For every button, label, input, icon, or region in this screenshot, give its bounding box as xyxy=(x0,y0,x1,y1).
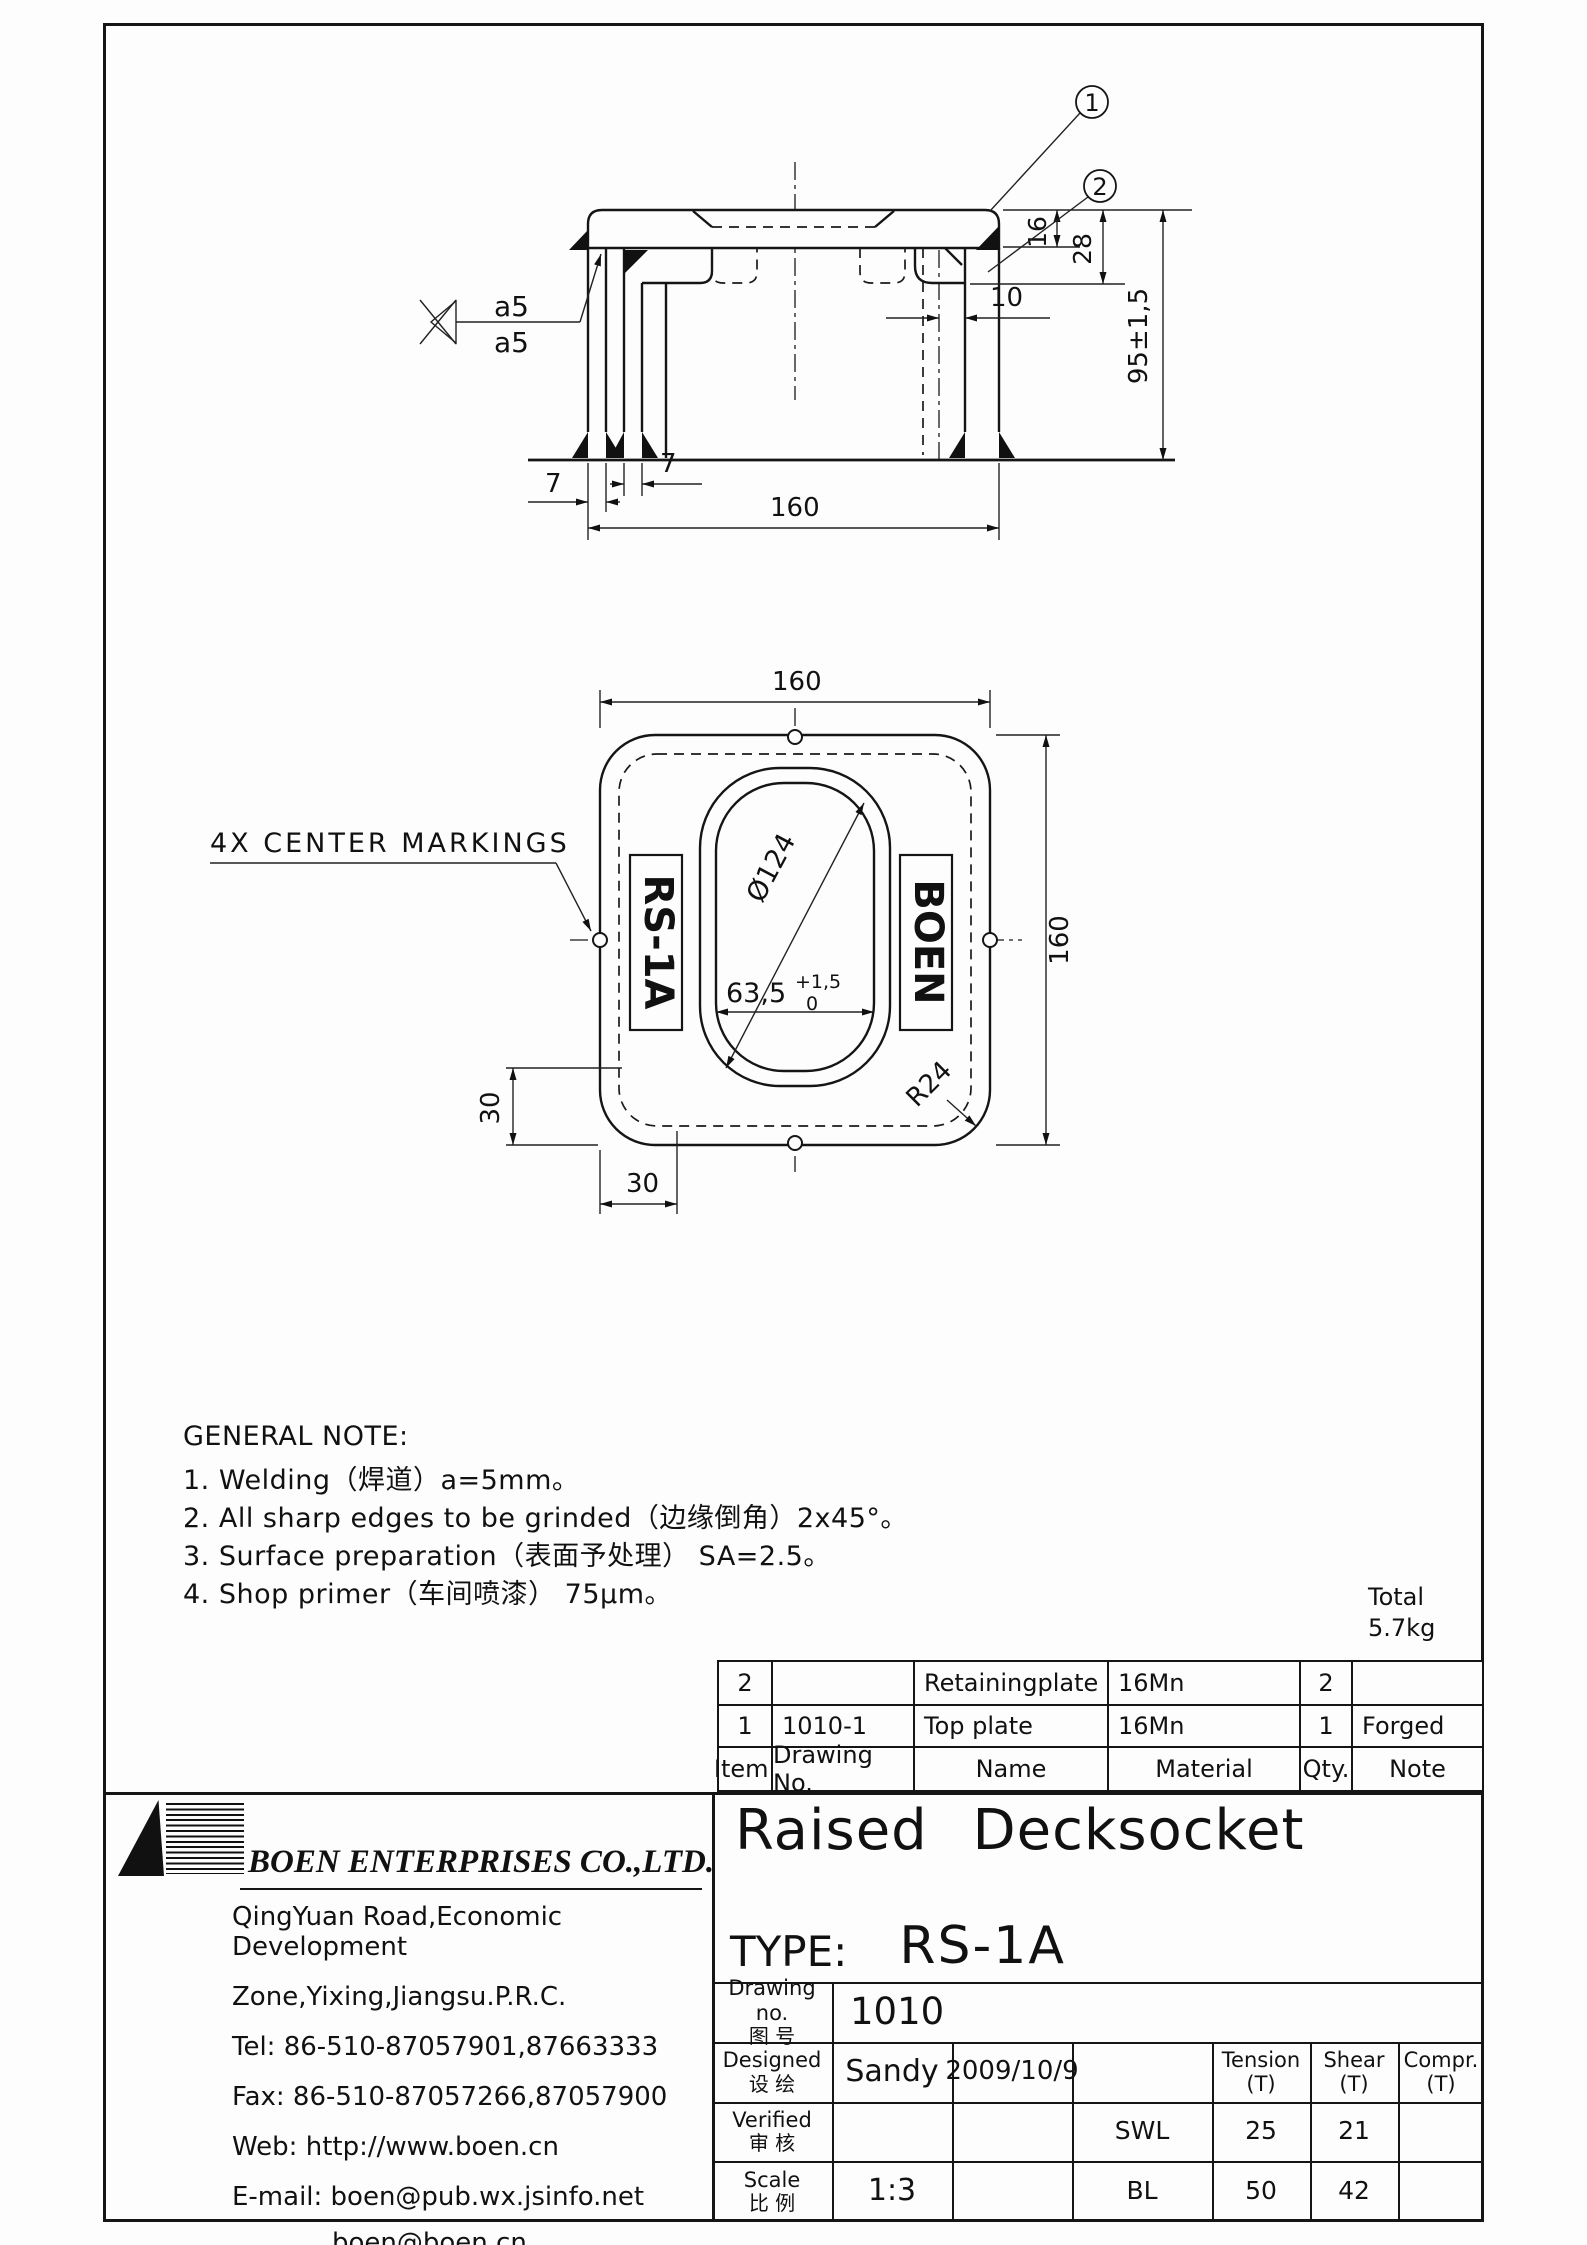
dim-10: 10 xyxy=(990,283,1023,313)
part-qty: 2 xyxy=(1301,1662,1351,1704)
type-label: TYPE: xyxy=(730,1927,847,1976)
parts-header-item: Item. xyxy=(719,1748,771,1790)
type-row: TYPE: RS-1A xyxy=(730,1916,1066,1976)
shear-header: Shear (T) xyxy=(1310,2042,1398,2102)
compr-label: Compr. xyxy=(1404,2048,1479,2072)
dim-28: 28 xyxy=(1068,233,1097,265)
company-email-2: boen@boen.cn xyxy=(232,2228,702,2245)
designer-name: Sandy xyxy=(832,2042,952,2102)
part-material: 16Mn xyxy=(1109,1662,1299,1704)
shear-label: Shear xyxy=(1323,2048,1384,2072)
verified-label-en: Verified xyxy=(732,2108,812,2132)
parts-header-qty: Qty. xyxy=(1301,1748,1351,1790)
note-line: 1. Welding（焊道）a=5mm。 xyxy=(183,1462,1163,1500)
dim-30-vertical: 30 xyxy=(476,1091,506,1124)
designed-label: Designed 设 绘 xyxy=(712,2042,832,2102)
parts-header-note: Note xyxy=(1353,1748,1482,1790)
stamp-rs1a: RS-1A xyxy=(635,875,681,1010)
side-view xyxy=(528,162,1175,465)
compr-unit: (T) xyxy=(1426,2072,1455,2096)
dim-slot: 63,5 xyxy=(726,978,786,1009)
bl-shear-value: 42 xyxy=(1310,2161,1398,2222)
dim-slot-tol-plus: +1,5 xyxy=(795,971,841,993)
verified-label-cn: 审 核 xyxy=(749,2132,795,2155)
part-material: 16Mn xyxy=(1109,1706,1299,1746)
drawing-title: Raised Decksocket xyxy=(735,1798,1304,1863)
dim-160-right: 160 xyxy=(1045,915,1075,965)
weld-symbol: a5 a5 xyxy=(420,254,601,359)
note-line: 3. Surface preparation（表面予处理） SA=2.5。 xyxy=(183,1538,1163,1576)
parts-table: 2 Retainingplate 16Mn 2 1 1010-1 Top pla… xyxy=(717,1660,1484,1792)
drawing-no-label-en: Drawing no. xyxy=(712,1976,832,2024)
bl-label: BL xyxy=(1072,2161,1212,2222)
compr-header: Compr. (T) xyxy=(1398,2042,1484,2102)
total-weight-label: Total xyxy=(1368,1582,1435,1613)
part-drawing-no: 1010-1 xyxy=(773,1706,913,1746)
dim-7-right: 7 xyxy=(660,449,677,479)
scale-label-en: Scale xyxy=(744,2168,801,2192)
part-name: Top plate xyxy=(915,1706,1107,1746)
tension-header: Tension (T) xyxy=(1212,2042,1310,2102)
top-view: RS-1A BOEN xyxy=(570,708,1022,1172)
swl-label: SWL xyxy=(1072,2102,1212,2161)
part-drawing-no xyxy=(773,1662,913,1704)
drawing-no-label: Drawing no. 图 号 xyxy=(712,1982,832,2042)
dim-slot-tol-zero: 0 xyxy=(806,993,818,1015)
dim-7-left: 7 xyxy=(545,469,562,499)
company-address-2: Zone,Yixing,Jiangsu.P.R.C. xyxy=(232,1982,702,2012)
company-email: E-mail: boen@pub.wx.jsinfo.net xyxy=(232,2182,702,2212)
tension-label: Tension xyxy=(1222,2048,1300,2072)
company-address-1: QingYuan Road,Economic Development xyxy=(232,1902,702,1962)
company-name-underline xyxy=(240,1888,702,1890)
dim-160-side: 160 xyxy=(770,493,820,523)
company-logo-stripes xyxy=(166,1803,244,1874)
general-notes: GENERAL NOTE: 1. Welding（焊道）a=5mm。 2. Al… xyxy=(183,1418,1163,1614)
total-weight-value: 5.7kg xyxy=(1368,1613,1435,1644)
bl-tension-value: 50 xyxy=(1212,2161,1310,2222)
designed-label-en: Designed xyxy=(723,2048,822,2072)
design-date: 2009/10/9 xyxy=(952,2042,1072,2102)
scale-label-cn: 比 例 xyxy=(749,2192,795,2215)
part-note: Forged xyxy=(1353,1706,1482,1746)
parts-header-material: Material xyxy=(1109,1748,1299,1790)
parts-header-drawing-no: Drawing No. xyxy=(773,1748,913,1790)
weld-size-bottom: a5 xyxy=(494,326,529,359)
scale-value: 1:3 xyxy=(832,2161,952,2222)
total-weight: Total 5.7kg xyxy=(1368,1582,1435,1644)
dim-160-top: 160 xyxy=(772,667,822,697)
stamp-boen: BOEN xyxy=(905,879,951,1004)
swl-tension-value: 25 xyxy=(1212,2102,1310,2161)
scale-label: Scale 比 例 xyxy=(712,2161,832,2222)
part-qty: 1 xyxy=(1301,1706,1351,1746)
weld-size-top: a5 xyxy=(494,290,529,323)
parts-header-name: Name xyxy=(915,1748,1107,1790)
company-web: Web: http://www.boen.cn xyxy=(232,2132,702,2162)
designed-label-cn: 设 绘 xyxy=(749,2073,795,2096)
verified-label: Verified 审 核 xyxy=(712,2102,832,2161)
company-fax: Fax: 86-510-87057266,87057900 xyxy=(232,2082,702,2112)
center-markings-callout: 4X CENTER MARKINGS xyxy=(210,828,570,859)
note-line: 4. Shop primer（车间喷漆） 75μm。 xyxy=(183,1576,1163,1614)
shear-unit: (T) xyxy=(1339,2072,1368,2096)
part-item: 1 xyxy=(719,1706,771,1746)
type-value: RS-1A xyxy=(899,1916,1066,1976)
cad-views: 7 7 160 16 28 95±1,5 10 xyxy=(0,0,1587,1600)
title-block-top-line xyxy=(103,1792,1481,1795)
note-line: 2. All sharp edges to be grinded（边缘倒角）2x… xyxy=(183,1500,1163,1538)
dim-30-horizontal: 30 xyxy=(626,1169,659,1199)
drawing-sheet: 7 7 160 16 28 95±1,5 10 xyxy=(0,0,1587,2245)
company-tel: Tel: 86-510-87057901,87663333 xyxy=(232,2032,702,2062)
part-name: Retainingplate xyxy=(915,1662,1107,1704)
tension-unit: (T) xyxy=(1246,2072,1275,2096)
company-info: QingYuan Road,Economic Development Zone,… xyxy=(232,1902,702,2245)
part-note xyxy=(1353,1662,1482,1704)
part-item: 2 xyxy=(719,1662,771,1704)
balloon-2-number: 2 xyxy=(1092,173,1107,201)
balloon-1-number: 1 xyxy=(1084,89,1099,117)
drawing-no-value: 1010 xyxy=(850,1982,1150,2042)
dim-95: 95±1,5 xyxy=(1124,288,1154,384)
swl-shear-value: 21 xyxy=(1310,2102,1398,2161)
company-name: BOEN ENTERPRISES CO.,LTD. xyxy=(248,1844,718,1881)
general-notes-title: GENERAL NOTE: xyxy=(183,1418,1163,1456)
